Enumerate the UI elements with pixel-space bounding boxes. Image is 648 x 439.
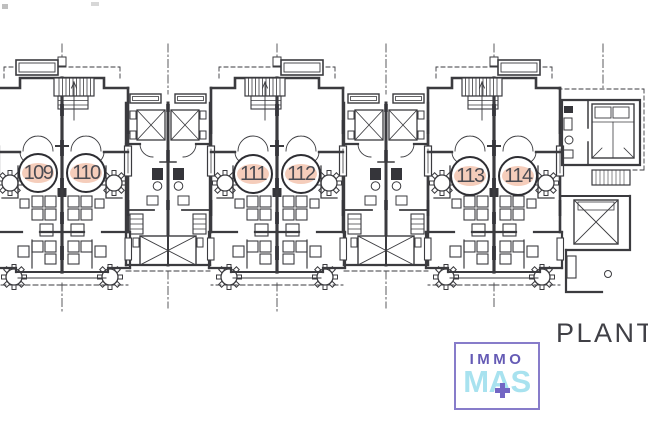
unit-number: 114 [500,158,536,194]
apartment-block-113-114 [425,57,564,290]
plus-icon [495,383,510,398]
unit-number-badge: 114 [498,156,538,196]
unit-number-badge: 110 [66,153,106,193]
unit-number: 109 [20,155,56,191]
unit-number: 111 [235,156,271,192]
unit-number-badge: 111 [233,154,273,194]
unit-number-badge: 109 [18,153,58,193]
connector-wing-right [344,94,428,271]
scanned-floorplan-page: 109 110 111 112 113 114 PLANTA IMMO MAS [0,0,648,439]
unit-number: 110 [68,155,104,191]
unit-number-badge: 112 [281,154,321,194]
unit-number: 113 [452,158,488,194]
immo-mas-logo: IMMO MAS [454,342,540,410]
scan-artifacts [2,2,99,9]
apartment-block-111-112 [208,57,347,290]
connector-wing-left [126,94,210,271]
plan-title: PLANTA [556,318,648,349]
unit-number-badge: 113 [450,156,490,196]
floorplan-linework [0,0,648,439]
right-end-section [558,89,644,292]
unit-number: 112 [283,156,319,192]
